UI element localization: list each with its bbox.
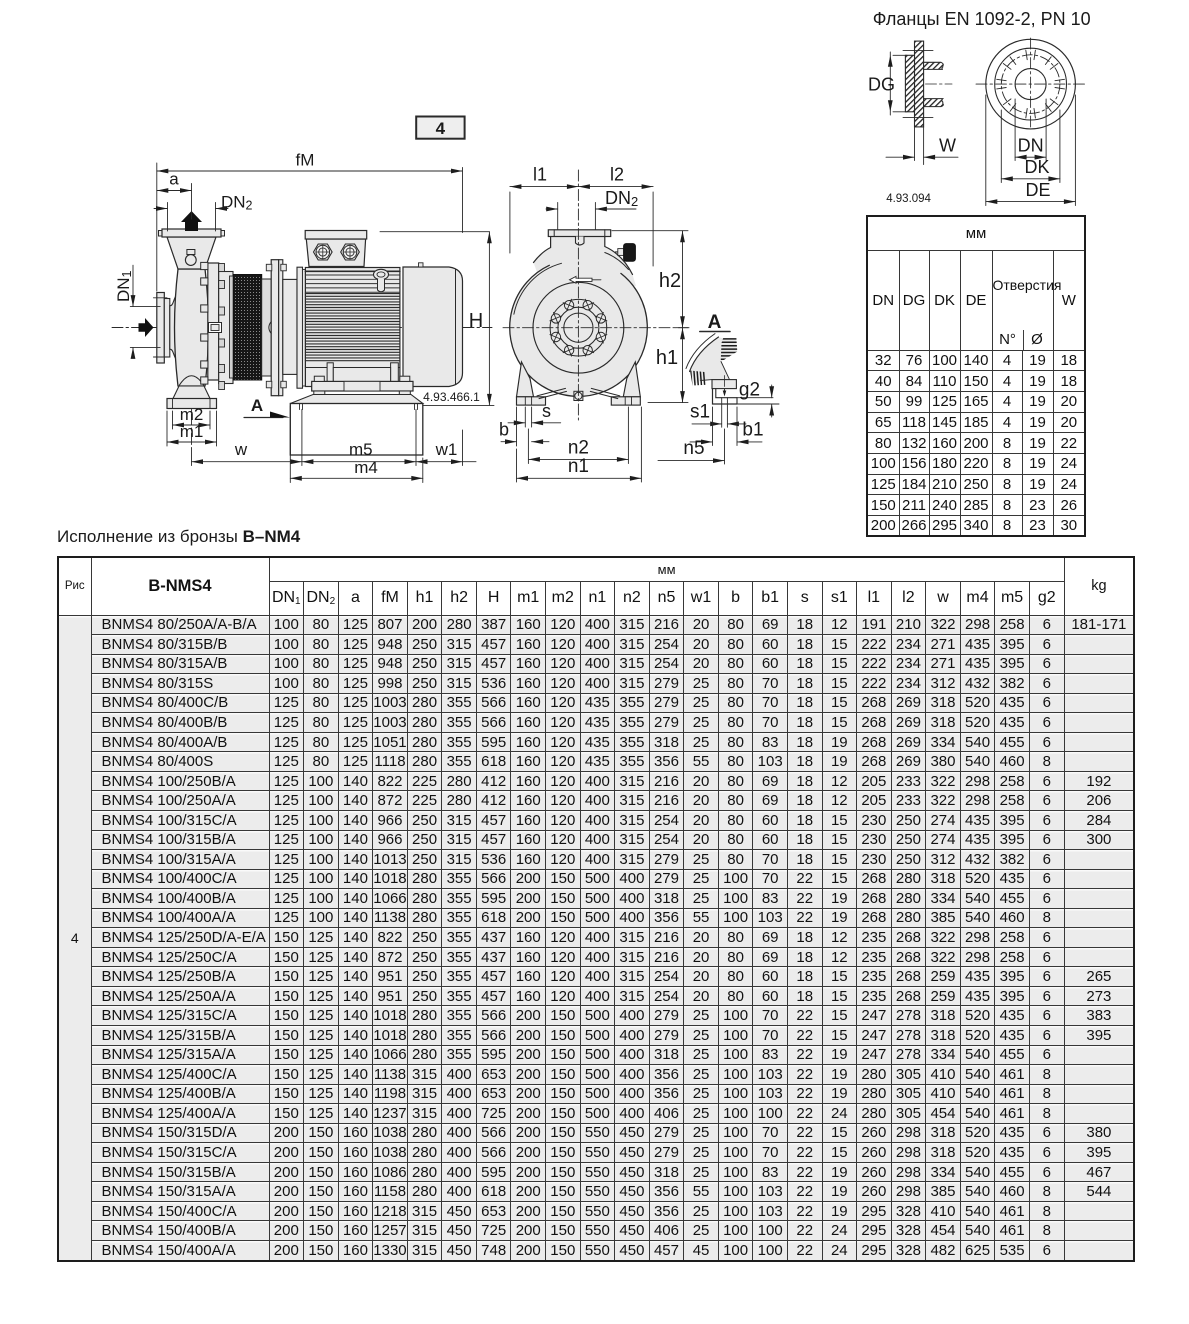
svg-text:l1: l1 bbox=[533, 165, 547, 185]
svg-text:DG: DG bbox=[868, 75, 895, 95]
svg-text:2: 2 bbox=[246, 199, 253, 213]
svg-text:4.93.094: 4.93.094 bbox=[886, 193, 931, 205]
svg-text:DE: DE bbox=[1025, 180, 1050, 200]
svg-text:fM: fM bbox=[296, 151, 315, 170]
svg-text:m1: m1 bbox=[180, 422, 204, 441]
svg-text:m4: m4 bbox=[354, 458, 378, 477]
svg-text:2: 2 bbox=[631, 194, 638, 209]
svg-text:n1: n1 bbox=[568, 456, 589, 477]
svg-text:h2: h2 bbox=[659, 270, 681, 292]
svg-text:A: A bbox=[251, 396, 263, 415]
svg-text:l2: l2 bbox=[610, 165, 624, 185]
svg-text:g2: g2 bbox=[739, 380, 760, 401]
svg-text:A: A bbox=[708, 312, 722, 333]
svg-text:n5: n5 bbox=[683, 438, 704, 459]
svg-text:m5: m5 bbox=[349, 440, 373, 459]
svg-text:h1: h1 bbox=[656, 347, 678, 369]
svg-text:H: H bbox=[469, 310, 483, 332]
svg-text:DN: DN bbox=[1018, 136, 1044, 156]
svg-text:4: 4 bbox=[436, 119, 446, 138]
svg-text:a: a bbox=[169, 170, 179, 189]
svg-text:w: w bbox=[234, 440, 248, 459]
svg-text:4.93.466.1: 4.93.466.1 bbox=[423, 390, 480, 404]
svg-text:DN: DN bbox=[221, 193, 246, 212]
svg-text:DK: DK bbox=[1024, 157, 1049, 177]
svg-text:b: b bbox=[499, 420, 509, 440]
svg-text:W: W bbox=[939, 136, 956, 156]
svg-text:DN1: DN1 bbox=[114, 270, 134, 302]
svg-text:b1: b1 bbox=[742, 420, 763, 441]
svg-text:DN: DN bbox=[605, 188, 631, 208]
svg-text:w1: w1 bbox=[435, 440, 458, 459]
svg-text:s: s bbox=[542, 401, 551, 421]
svg-text:s1: s1 bbox=[690, 402, 710, 423]
svg-text:Фланцы EN 1092-2, PN 10: Фланцы EN 1092-2, PN 10 bbox=[873, 9, 1091, 29]
